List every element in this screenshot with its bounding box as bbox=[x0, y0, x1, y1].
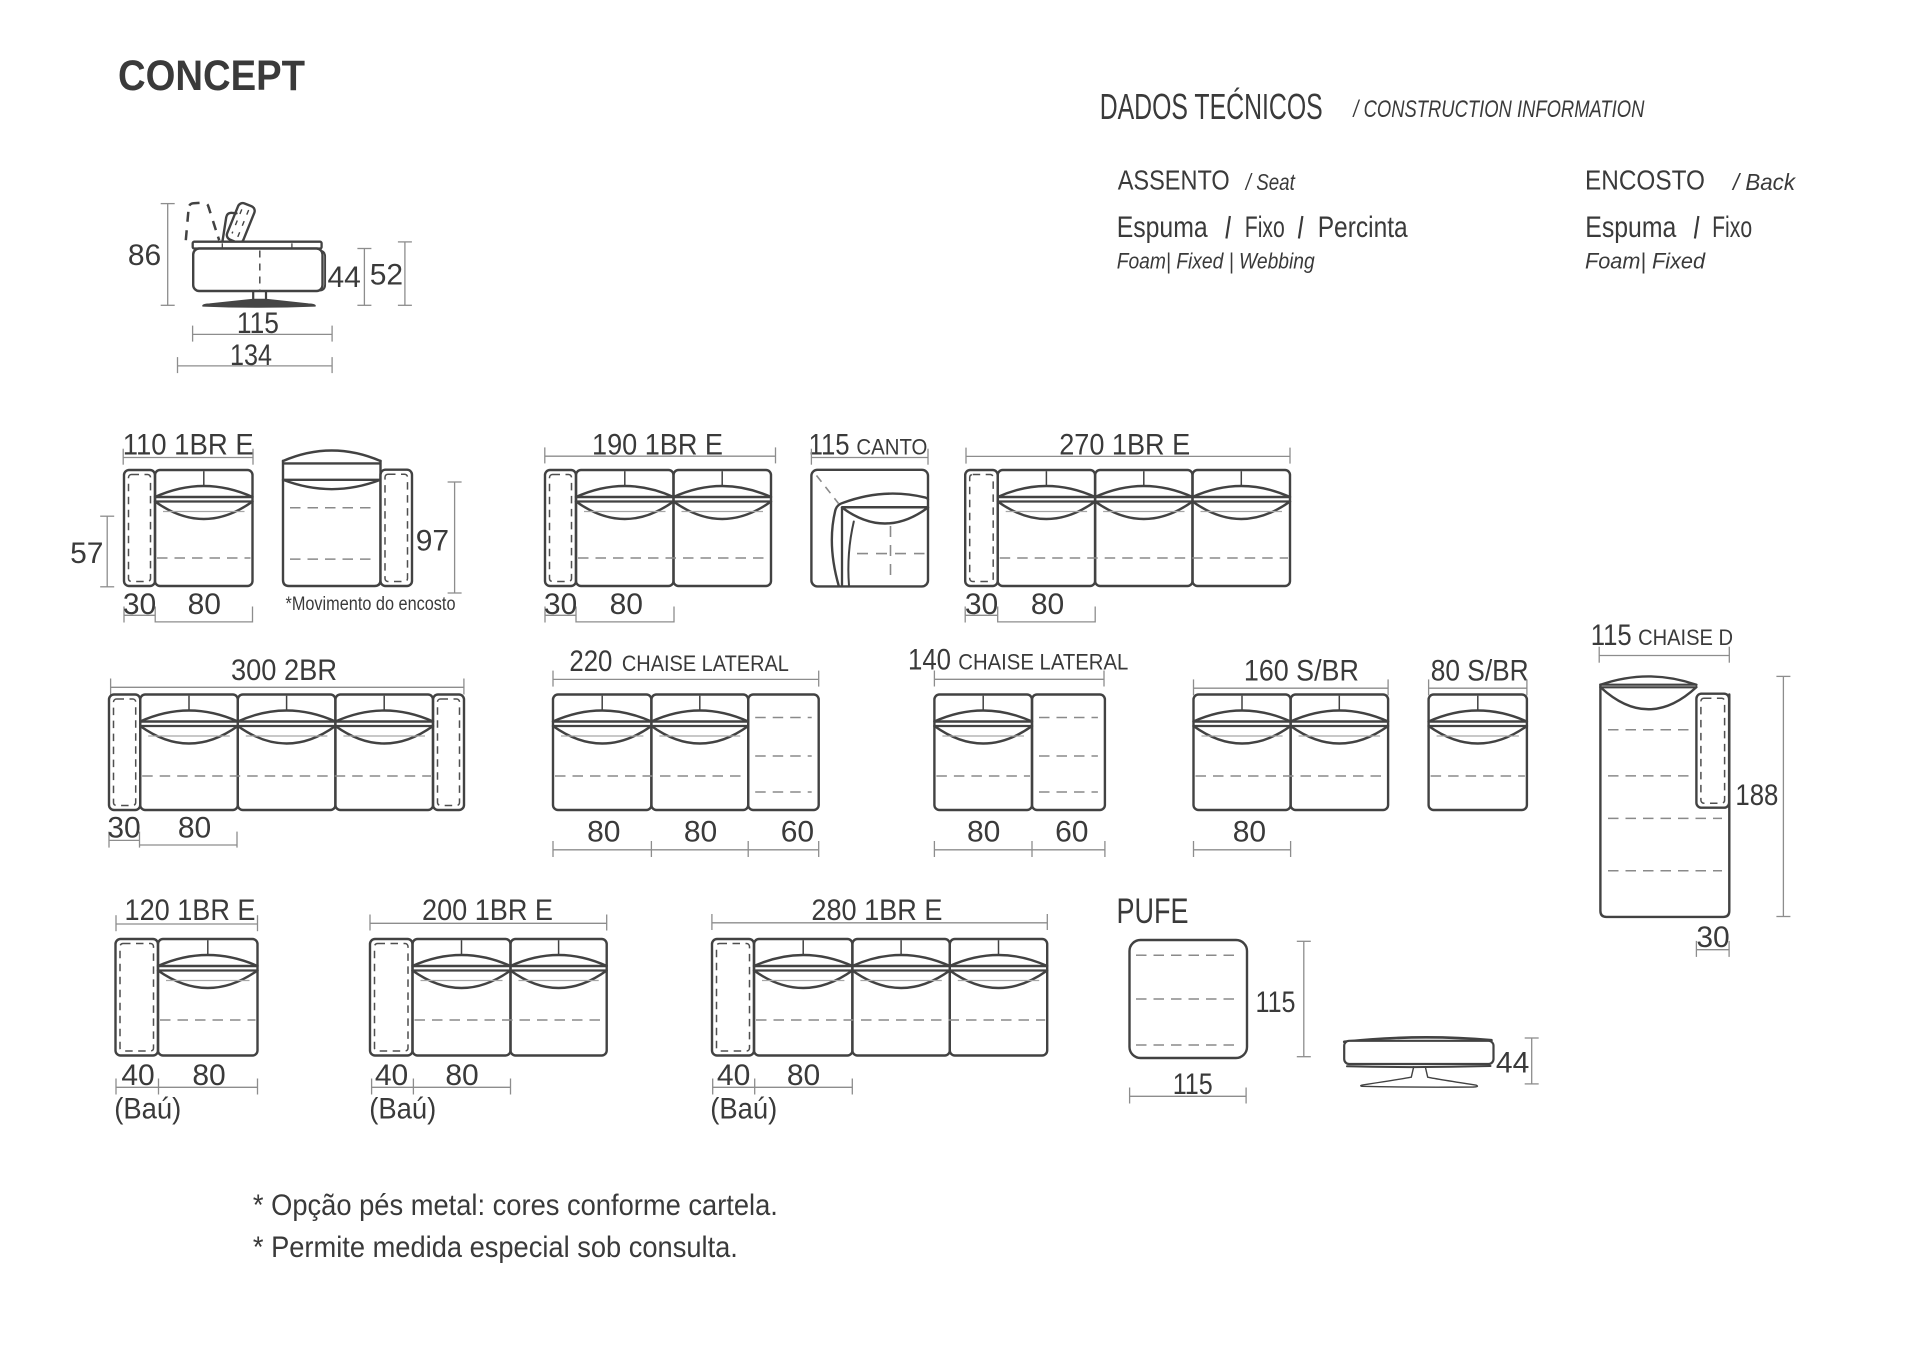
svg-text:97: 97 bbox=[416, 525, 449, 558]
svg-text:* Opção pés metal: cores confo: * Opção pés metal: cores conforme cartel… bbox=[253, 1189, 778, 1222]
svg-text:/ Seat: / Seat bbox=[1244, 169, 1296, 195]
svg-text:60: 60 bbox=[781, 816, 814, 849]
svg-text:200 1BR E: 200 1BR E bbox=[422, 894, 553, 927]
svg-text:115: 115 bbox=[1173, 1068, 1213, 1101]
svg-text:134: 134 bbox=[230, 339, 272, 372]
svg-text:60: 60 bbox=[1055, 816, 1088, 849]
svg-text:300 2BR: 300 2BR bbox=[231, 654, 337, 687]
svg-text:44: 44 bbox=[328, 261, 361, 294]
svg-text:160 S/BR: 160 S/BR bbox=[1244, 655, 1359, 688]
svg-text:CHAISE D: CHAISE D bbox=[1638, 625, 1733, 650]
svg-text:* Permite medida especial sob: * Permite medida especial sob consulta. bbox=[253, 1231, 738, 1264]
svg-text:ENCOSTO: ENCOSTO bbox=[1585, 165, 1705, 196]
svg-text:40: 40 bbox=[121, 1059, 154, 1092]
svg-text:Foam| Fixed: Foam| Fixed bbox=[1585, 249, 1706, 274]
svg-text:CHAISE LATERAL: CHAISE LATERAL bbox=[958, 650, 1128, 675]
svg-text:115: 115 bbox=[1256, 986, 1296, 1019]
svg-text:86: 86 bbox=[128, 239, 161, 272]
svg-text:80 S/BR: 80 S/BR bbox=[1431, 655, 1529, 688]
svg-text:/ Back: / Back bbox=[1731, 169, 1796, 195]
svg-text:40: 40 bbox=[717, 1059, 750, 1092]
svg-text:Espuma: Espuma bbox=[1585, 211, 1676, 244]
svg-text:30: 30 bbox=[107, 812, 140, 845]
svg-text:80: 80 bbox=[178, 812, 211, 845]
svg-text:44: 44 bbox=[1496, 1047, 1529, 1080]
svg-text:Fixo: Fixo bbox=[1712, 211, 1752, 244]
svg-text:80: 80 bbox=[192, 1059, 225, 1092]
svg-text:40: 40 bbox=[375, 1059, 408, 1092]
svg-text:140: 140 bbox=[908, 644, 951, 677]
svg-text:30: 30 bbox=[544, 588, 577, 621]
svg-text:220: 220 bbox=[569, 645, 612, 678]
svg-text:80: 80 bbox=[1031, 588, 1064, 621]
svg-text:30: 30 bbox=[123, 588, 156, 621]
svg-text:120 1BR E: 120 1BR E bbox=[125, 894, 256, 927]
svg-text:80: 80 bbox=[967, 816, 1000, 849]
svg-text:(Baú): (Baú) bbox=[114, 1093, 181, 1126]
svg-text:110 1BR E: 110 1BR E bbox=[123, 429, 254, 462]
svg-text:80: 80 bbox=[610, 588, 643, 621]
svg-text:80: 80 bbox=[587, 816, 620, 849]
svg-text:115: 115 bbox=[237, 307, 279, 340]
svg-text:80: 80 bbox=[445, 1059, 478, 1092]
svg-text:30: 30 bbox=[1696, 921, 1729, 954]
svg-text:80: 80 bbox=[787, 1059, 820, 1092]
svg-text:ASSENTO: ASSENTO bbox=[1118, 165, 1230, 196]
svg-text:80: 80 bbox=[684, 816, 717, 849]
svg-text:CONCEPT: CONCEPT bbox=[118, 52, 305, 100]
svg-text:115: 115 bbox=[809, 429, 850, 462]
svg-text:Fixo: Fixo bbox=[1245, 211, 1285, 244]
svg-text:PUFE: PUFE bbox=[1117, 892, 1189, 931]
svg-text:52: 52 bbox=[370, 259, 403, 292]
svg-text:/ CONSTRUCTION INFORMATION: / CONSTRUCTION INFORMATION bbox=[1352, 96, 1645, 123]
svg-text:Percinta: Percinta bbox=[1318, 211, 1408, 244]
svg-text:Foam| Fixed | Webbing: Foam| Fixed | Webbing bbox=[1117, 249, 1316, 274]
svg-text:*Movimento do encosto: *Movimento do encosto bbox=[286, 594, 456, 615]
svg-text:(Baú): (Baú) bbox=[710, 1093, 777, 1126]
svg-text:DADOS TEĆNICOS: DADOS TEĆNICOS bbox=[1100, 86, 1323, 127]
svg-text:Espuma: Espuma bbox=[1117, 211, 1208, 244]
svg-text:(Baú): (Baú) bbox=[369, 1093, 436, 1126]
svg-text:280 1BR E: 280 1BR E bbox=[811, 894, 942, 927]
svg-text:CANTO: CANTO bbox=[856, 435, 927, 460]
svg-text:CHAISE LATERAL: CHAISE LATERAL bbox=[622, 651, 789, 676]
svg-text:188: 188 bbox=[1735, 779, 1778, 812]
svg-text:80: 80 bbox=[188, 588, 221, 621]
svg-text:115: 115 bbox=[1591, 619, 1632, 652]
svg-text:80: 80 bbox=[1233, 816, 1266, 849]
svg-text:30: 30 bbox=[965, 588, 998, 621]
svg-text:57: 57 bbox=[70, 537, 103, 570]
